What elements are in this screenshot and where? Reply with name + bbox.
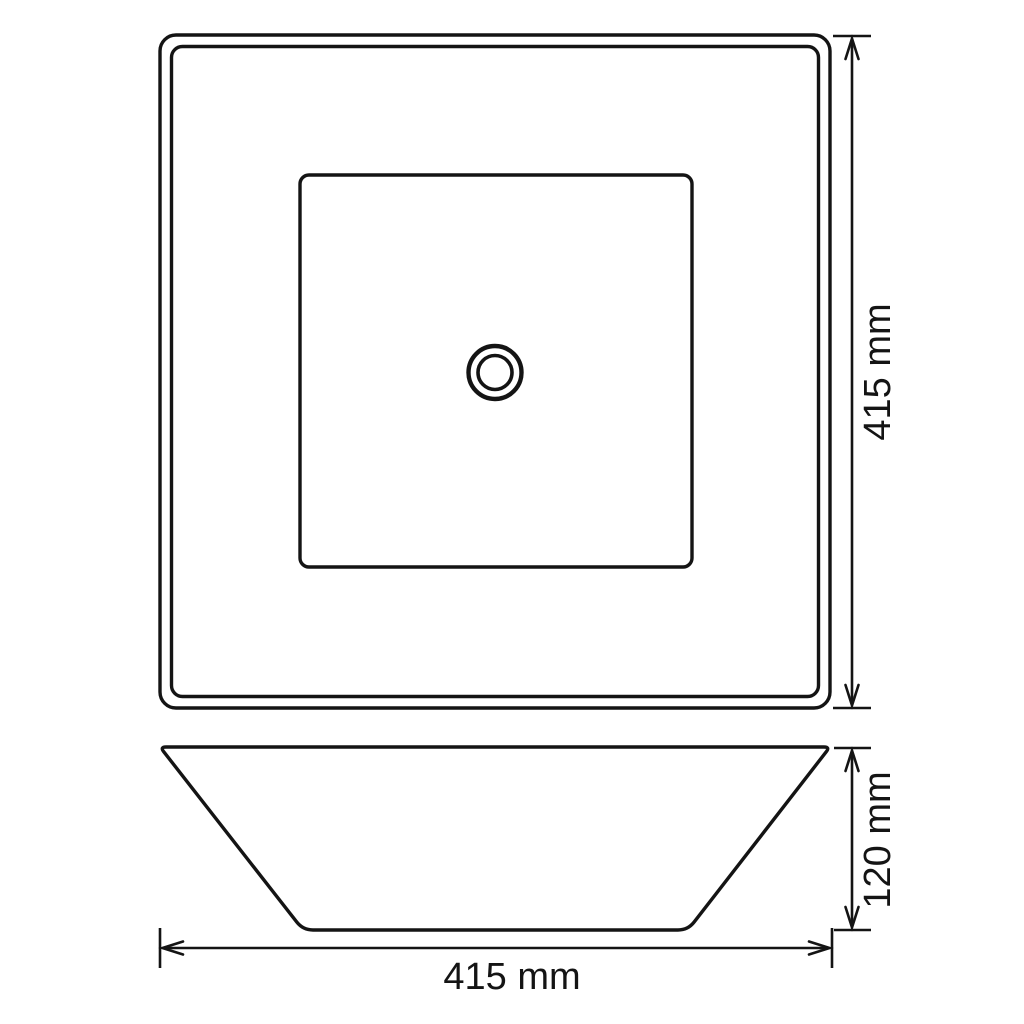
dimension-label-side-view-height: 120 mm — [857, 771, 899, 908]
side-view — [162, 747, 827, 930]
basin-side-profile — [162, 747, 827, 930]
dimension-top-view-height: 415 mm — [833, 36, 899, 708]
top-view — [160, 35, 830, 708]
dimension-label-top-view-height: 415 mm — [857, 303, 899, 440]
drawing-canvas: 415 mm 120 mm 415 mm — [0, 0, 1024, 1024]
basin-inner-rim — [172, 47, 819, 697]
dimension-side-view-height: 120 mm — [834, 748, 899, 930]
technical-drawing: 415 mm 120 mm 415 mm — [0, 0, 1024, 1024]
dimension-label-side-view-width: 415 mm — [443, 956, 580, 998]
dimension-side-view-width: 415 mm — [160, 928, 832, 998]
basin-floor — [300, 175, 692, 567]
basin-outer-rim — [160, 35, 830, 708]
drain-hole-inner-ring — [478, 356, 512, 390]
